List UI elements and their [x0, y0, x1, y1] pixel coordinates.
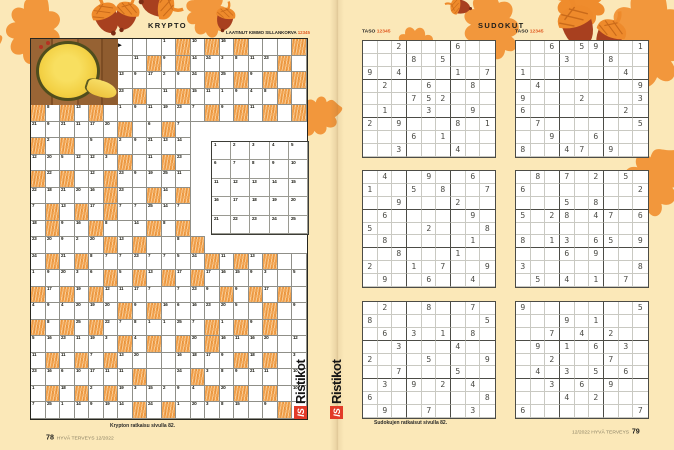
krypto-cell: 1: [176, 402, 191, 419]
sudoku-cell: [575, 354, 590, 367]
krypto-cell: [191, 221, 206, 238]
sudoku-cell: 2: [422, 223, 437, 236]
arrow-right-icon: ▶: [118, 42, 122, 48]
sudoku-cell: 2: [575, 93, 590, 106]
krypto-cell: [292, 105, 307, 122]
sudoku-cell: [451, 223, 466, 236]
sudoku-cell: 1: [407, 261, 422, 274]
krypto-cell: [191, 155, 206, 172]
sudoku-cell: [436, 405, 451, 418]
krypto-cell: 25: [176, 320, 191, 337]
krypto-cell: 13: [249, 254, 264, 271]
sudoku-cell: [575, 80, 590, 93]
sudoku-cell: [407, 197, 422, 210]
krypto-cell: 11: [60, 353, 75, 370]
sudoku-cell: [480, 197, 495, 210]
sudoku-cell: [422, 379, 437, 392]
krypto-cell: 17: [263, 287, 278, 304]
sudoku-cell: [451, 392, 466, 405]
sudoku-cell: [633, 54, 648, 67]
krypto-cell: 9: [234, 369, 249, 386]
sudoku-cell: [378, 248, 393, 261]
sudoku-cell: [422, 315, 437, 328]
krypto-cell: 6: [147, 122, 162, 139]
sudoku-cell: 6: [589, 131, 604, 144]
krypto-cell: 9: [249, 72, 264, 89]
krypto-solution-note: Krypton ratkaisu sivulla 82.: [110, 423, 175, 429]
krypto-cell: 1: [147, 320, 162, 337]
krypto-cell: [234, 39, 249, 56]
sudoku-cell: [619, 379, 634, 392]
krypto-cell: [249, 237, 264, 254]
krypto-cell: 3: [133, 386, 148, 403]
sudoku-cell: 3: [422, 105, 437, 118]
sudoku-cell: 8: [392, 248, 407, 261]
sudoku-cell: 5: [407, 184, 422, 197]
sudoku-cell: 9: [392, 118, 407, 131]
krypto-cell: [234, 72, 249, 89]
sudoku-cell: 3: [378, 379, 393, 392]
krypto-cell: [278, 122, 293, 139]
reference-cell: 4: [270, 142, 289, 160]
sudoku-cell: 7: [466, 302, 481, 315]
sudoku-cell: 7: [531, 118, 546, 131]
krypto-cell: 9: [60, 221, 75, 238]
sudoku-cell: [516, 328, 531, 341]
sudoku-cell: [378, 197, 393, 210]
sudoku-cell: [589, 54, 604, 67]
sudoku-cell: [480, 131, 495, 144]
sudoku-cell: [480, 144, 495, 157]
krypto-cell: 4: [60, 303, 75, 320]
krypto-cell: 6: [176, 303, 191, 320]
krypto-cell: 20: [75, 303, 90, 320]
sudoku-cell: [480, 41, 495, 54]
difficulty-scale: 12345: [298, 30, 310, 35]
krypto-cell: 16: [220, 336, 235, 353]
reference-cell: 13: [250, 179, 269, 197]
sudoku-cell: 8: [480, 223, 495, 236]
sudoku-cell: [516, 274, 531, 287]
sudoku-cell: [480, 54, 495, 67]
sudoku-cell: [589, 379, 604, 392]
sudoku-cell: 7: [604, 210, 619, 223]
sudoku-cell: [466, 93, 481, 106]
sudoku-cell: [436, 171, 451, 184]
krypto-cell: [46, 204, 61, 221]
reference-cell: 19: [270, 197, 289, 215]
sudoku-cell: 6: [378, 328, 393, 341]
krypto-cell: [118, 336, 133, 353]
krypto-cell: [162, 336, 177, 353]
krypto-cell: [292, 89, 307, 106]
sudoku-cell: [619, 354, 634, 367]
krypto-cell: [278, 39, 293, 56]
sudoku-cell: [589, 80, 604, 93]
sudoku-cell: [560, 41, 575, 54]
sudoku-cell: 7: [436, 261, 451, 274]
sudoku-cell: 3: [560, 54, 575, 67]
sudoku-cell: [575, 105, 590, 118]
sudoku-cell: 2: [545, 210, 560, 223]
sudoku-cell: [407, 41, 422, 54]
krypto-cell: [46, 254, 61, 271]
sudoku-cell: 8: [466, 80, 481, 93]
sudoku-cell: [575, 302, 590, 315]
sudoku-cell: [422, 341, 437, 354]
krypto-cell: 18: [249, 353, 264, 370]
krypto-cell: [46, 386, 61, 403]
reference-cell: 11: [212, 179, 231, 197]
krypto-cell: [249, 122, 264, 139]
krypto-cell: 11: [249, 105, 264, 122]
sudoku-cell: 9: [480, 261, 495, 274]
sudoku-cell: [516, 379, 531, 392]
sudoku-cell: 9: [363, 67, 378, 80]
krypto-cell: 9: [249, 320, 264, 337]
krypto-cell: 16: [220, 39, 235, 56]
krypto-cell: [249, 386, 264, 403]
krypto-cell: [133, 39, 148, 56]
krypto-cell: 16: [75, 221, 90, 238]
krypto-cell: 2: [46, 138, 61, 155]
sudoku-cell: 9: [480, 354, 495, 367]
sudoku-cell: [436, 302, 451, 315]
krypto-cell: [118, 56, 133, 73]
sudoku-cell: [560, 328, 575, 341]
sudoku-cell: [363, 405, 378, 418]
sudoku-cell: [560, 118, 575, 131]
krypto-cell: [89, 320, 104, 337]
sudoku-cell: [589, 67, 604, 80]
sudoku-cell: 9: [560, 315, 575, 328]
sudoku-cell: [363, 235, 378, 248]
krypto-cell: 17: [147, 72, 162, 89]
krypto-cell: [263, 254, 278, 271]
krypto-cell: [176, 336, 191, 353]
sudoku-cell: [633, 354, 648, 367]
sudoku-cell: 9: [378, 405, 393, 418]
krypto-cell: 11: [75, 122, 90, 139]
krypto-cell: 12: [75, 155, 90, 172]
krypto-cell: 5: [31, 336, 46, 353]
krypto-cell: [75, 171, 90, 188]
sudoku-cell: 5: [575, 41, 590, 54]
sudoku-cell: [392, 171, 407, 184]
krypto-cell: 7: [118, 320, 133, 337]
sudoku-cell: [407, 210, 422, 223]
krypto-cell: 1: [31, 386, 46, 403]
sudoku-cell: 6: [407, 131, 422, 144]
sudoku-cell: 2: [363, 354, 378, 367]
krypto-cell: 16: [162, 303, 177, 320]
reference-cell: 17: [231, 197, 250, 215]
sudoku-cell: [545, 67, 560, 80]
krypto-cell: 16: [249, 336, 264, 353]
sudoku-cell: 9: [545, 131, 560, 144]
sudoku-cell: [531, 405, 546, 418]
sudoku-cell: [480, 405, 495, 418]
krypto-cell: [263, 237, 278, 254]
reference-cell: 3: [250, 142, 269, 160]
sudoku-cell: 6: [589, 235, 604, 248]
sudoku-cell: [422, 54, 437, 67]
is-logo-badge: IS: [330, 406, 343, 419]
krypto-cell: [205, 237, 220, 254]
sudoku-cell: [545, 341, 560, 354]
sudoku-cell: [619, 248, 634, 261]
sudoku-cell: 2: [436, 93, 451, 106]
sudoku-grid-4: 8725625852847681365969385417: [515, 170, 649, 288]
sudoku-cell: [545, 80, 560, 93]
sudoku-cell: 5: [451, 366, 466, 379]
sudoku-cell: [633, 274, 648, 287]
krypto-cell: 16: [46, 336, 61, 353]
krypto-cell: [147, 188, 162, 205]
sudoku-cell: [531, 197, 546, 210]
sudoku-cell: [363, 274, 378, 287]
sudoku-cell: 2: [619, 105, 634, 118]
sudoku-cell: [619, 302, 634, 315]
sudoku-cell: 5: [633, 118, 648, 131]
sudoku-cell: 8: [480, 392, 495, 405]
sudoku-cell: [604, 197, 619, 210]
sudoku-cell: [531, 302, 546, 315]
sudoku-cell: [466, 118, 481, 131]
krypto-cell: 9: [263, 402, 278, 419]
krypto-cell: [292, 320, 307, 337]
sudoku-cell: [619, 197, 634, 210]
reference-cell: 25: [289, 216, 308, 234]
sudoku-cell: 3: [407, 328, 422, 341]
sudoku-cell: [560, 184, 575, 197]
krypto-cell: [278, 402, 293, 419]
krypto-cell: [31, 105, 46, 122]
reference-cell: 23: [250, 216, 269, 234]
sudoku-cell: [560, 354, 575, 367]
krypto-cell: 3: [205, 402, 220, 419]
krypto-cell: 16: [89, 188, 104, 205]
krypto-cell: 2: [118, 138, 133, 155]
sudoku-cell: 6: [633, 210, 648, 223]
sudoku-cell: [589, 105, 604, 118]
sudoku-cell: [392, 235, 407, 248]
sudoku-cell: [451, 315, 466, 328]
krypto-cell: 3: [263, 270, 278, 287]
sudoku-cell: 1: [363, 184, 378, 197]
krypto-cell: 2: [162, 72, 177, 89]
sudoku-cell: 6: [545, 41, 560, 54]
sudoku-cell: [545, 171, 560, 184]
sudoku-cell: [436, 105, 451, 118]
krypto-cell: [263, 303, 278, 320]
sudoku-cell: [451, 274, 466, 287]
krypto-cell: [263, 105, 278, 122]
sudoku-cell: [545, 144, 560, 157]
sudoku-cell: [604, 171, 619, 184]
sudoku-cell: [363, 302, 378, 315]
sudoku-cell: 5: [436, 54, 451, 67]
sudoku-cell: [422, 131, 437, 144]
sudoku-cell: 5: [422, 93, 437, 106]
krypto-cell: 7: [104, 254, 119, 271]
sudoku-cell: [422, 67, 437, 80]
sudoku-cell: [392, 54, 407, 67]
sudoku-cell: [531, 354, 546, 367]
sudoku-cell: [589, 118, 604, 131]
krypto-cell: 20: [104, 122, 119, 139]
krypto-cell: 8: [162, 221, 177, 238]
sudoku-cell: [619, 210, 634, 223]
krypto-cell: 14: [162, 188, 177, 205]
sudoku-cell: 9: [378, 274, 393, 287]
sudoku-cell: 4: [575, 328, 590, 341]
krypto-cell: [31, 138, 46, 155]
sudoku-cell: 7: [545, 328, 560, 341]
krypto-cell: 13: [147, 270, 162, 287]
sudoku-cell: 9: [633, 235, 648, 248]
sudoku-cell: 4: [466, 274, 481, 287]
krypto-cell: 25: [162, 171, 177, 188]
sudoku-cell: [363, 379, 378, 392]
sudoku-cell: [575, 54, 590, 67]
sudoku-cell: [604, 341, 619, 354]
krypto-cell: [234, 320, 249, 337]
sudoku-cell: [378, 184, 393, 197]
krypto-cell: 7: [118, 254, 133, 271]
sudoku-cell: 2: [392, 41, 407, 54]
sudoku-cell: 9: [516, 302, 531, 315]
sudoku-cell: [436, 366, 451, 379]
krypto-cell: [278, 303, 293, 320]
krypto-cell: [104, 353, 119, 370]
krypto-cell: 7: [118, 204, 133, 221]
krypto-cell: 14: [162, 204, 177, 221]
sudoku-cell: [531, 261, 546, 274]
sudoku-cell: [575, 366, 590, 379]
sudoku-cell: [392, 274, 407, 287]
krypto-cell: [133, 89, 148, 106]
krypto-cell: 9: [234, 287, 249, 304]
sudoku-cell: 7: [575, 144, 590, 157]
krypto-cell: 7: [176, 204, 191, 221]
krypto-cell: 10: [75, 369, 90, 386]
krypto-cell: [263, 353, 278, 370]
sudoku-cell: 4: [378, 171, 393, 184]
krypto-cell: 6: [60, 369, 75, 386]
sudoku-cell: 1: [545, 235, 560, 248]
sudoku-cell: [451, 105, 466, 118]
krypto-cell: 11: [249, 56, 264, 73]
krypto-cell: 7: [191, 320, 206, 337]
krypto-cell: 8: [234, 56, 249, 73]
sudoku-cell: 3: [392, 144, 407, 157]
krypto-cell: [191, 237, 206, 254]
krypto-cell: 25: [220, 72, 235, 89]
sudoku-cell: 1: [378, 105, 393, 118]
sudoku-cell: [560, 93, 575, 106]
krypto-cell: [104, 270, 119, 287]
krypto-cell: 9: [220, 105, 235, 122]
reference-cell: 22: [231, 216, 250, 234]
sudoku-cell: [451, 328, 466, 341]
sudoku-cell: 5: [560, 197, 575, 210]
krypto-cell: [191, 369, 206, 386]
reference-cell: 10: [289, 160, 308, 178]
krypto-cell: [147, 336, 162, 353]
sudoku-cell: [633, 171, 648, 184]
sudoku-cell: [633, 366, 648, 379]
krypto-cell: [278, 254, 293, 271]
krypto-cell: 25: [75, 320, 90, 337]
sudoku-cell: [619, 93, 634, 106]
krypto-cell: 24: [147, 402, 162, 419]
sudoku-cell: [480, 210, 495, 223]
krypto-cell: [205, 105, 220, 122]
sudoku-cell: [575, 67, 590, 80]
sudoku-cell: 5: [422, 354, 437, 367]
krypto-cell: [278, 56, 293, 73]
krypto-cell: 23: [60, 336, 75, 353]
sudoku-cell: 3: [466, 405, 481, 418]
krypto-cell: 4: [133, 336, 148, 353]
krypto-cell: 25: [147, 204, 162, 221]
krypto-cell: 20: [46, 155, 61, 172]
sudoku-cell: [560, 379, 575, 392]
is-logo-badge: IS: [294, 406, 307, 419]
krypto-cell: 20: [191, 402, 206, 419]
sudoku-cell: [619, 80, 634, 93]
krypto-cell: [147, 221, 162, 238]
sudoku-cell: [378, 223, 393, 236]
sudoku-grid-3: 4961587926952881812179964: [362, 170, 496, 288]
krypto-cell: [278, 89, 293, 106]
sudoku-cell: [545, 302, 560, 315]
sudoku-cell: [451, 261, 466, 274]
krypto-cell: [205, 386, 220, 403]
krypto-cell: 9: [292, 303, 307, 320]
sudoku-cell: [633, 223, 648, 236]
sudoku-cell: [589, 354, 604, 367]
sudoku-cell: [575, 171, 590, 184]
krypto-cell: [162, 402, 177, 419]
krypto-cell: 3: [205, 369, 220, 386]
sudoku-cell: [531, 144, 546, 157]
krypto-cell: [234, 122, 249, 139]
sudoku-cell: 1: [436, 131, 451, 144]
sudoku-cell: 9: [531, 341, 546, 354]
sudoku-cell: [531, 93, 546, 106]
sudoku-cell: [451, 184, 466, 197]
sudoku-cell: 8: [378, 235, 393, 248]
sudoku-cell: [422, 210, 437, 223]
sudoku-cell: 4: [589, 210, 604, 223]
sudoku-cell: [516, 171, 531, 184]
krypto-cell: [278, 72, 293, 89]
krypto-cell: 7: [31, 204, 46, 221]
sudoku-cell: [604, 41, 619, 54]
krypto-cell: [133, 237, 148, 254]
krypto-cell: [147, 89, 162, 106]
krypto-cell: 11: [205, 89, 220, 106]
sudoku-cell: [480, 248, 495, 261]
sudoku-cell: [451, 210, 466, 223]
krypto-cell: 8: [176, 237, 191, 254]
reference-cell: 6: [212, 160, 231, 178]
krypto-cell: [292, 254, 307, 271]
sudoku-cell: [378, 144, 393, 157]
sudoku-cell: [604, 366, 619, 379]
